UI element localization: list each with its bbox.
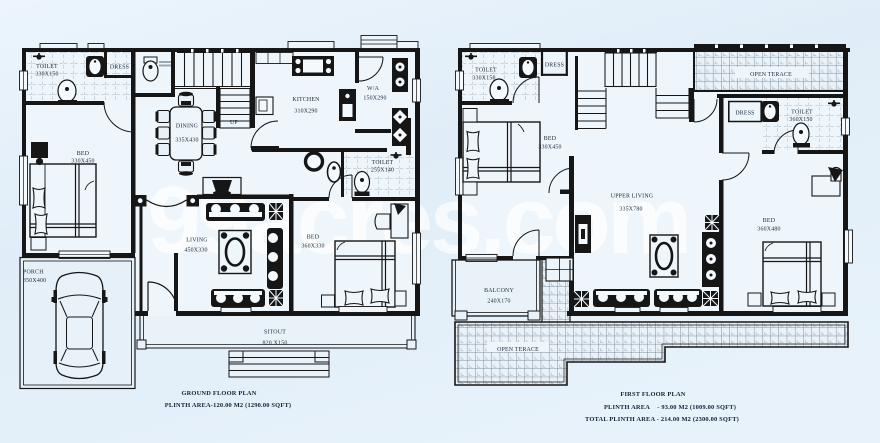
svg-text:UPPER LIVING: UPPER LIVING (611, 194, 654, 200)
svg-text:BED: BED (77, 151, 90, 157)
svg-text:OPEN TERACE: OPEN TERACE (750, 72, 792, 78)
svg-text:820 X150: 820 X150 (263, 341, 288, 347)
svg-text:360X330: 360X330 (301, 244, 324, 250)
svg-text:BALCONY: BALCONY (484, 288, 514, 294)
svg-text:FIRST FLOOR PLAN: FIRST FLOOR PLAN (620, 391, 685, 398)
svg-text:OPEN TERACE: OPEN TERACE (497, 347, 539, 353)
svg-text:TOILET: TOILET (791, 110, 813, 116)
svg-text:350X400: 350X400 (23, 278, 46, 284)
svg-text:330X150: 330X150 (472, 76, 495, 82)
svg-text:360X150: 360X150 (789, 117, 812, 123)
svg-text:TOILET: TOILET (475, 68, 497, 74)
svg-text:GROUND FLOOR PLAN: GROUND FLOOR PLAN (181, 390, 256, 397)
svg-text:335X780: 335X780 (619, 207, 642, 213)
svg-text:BED: BED (763, 218, 776, 224)
svg-text:360X480: 360X480 (757, 227, 780, 233)
svg-text:240X170: 240X170 (487, 299, 510, 305)
svg-text:TOILET: TOILET (36, 64, 58, 70)
svg-text:310X290: 310X290 (294, 109, 317, 115)
svg-text:TOTAL PLINTH AREA - 214.00 M2: TOTAL PLINTH AREA - 214.00 M2 (2300.00 S… (585, 416, 739, 423)
svg-text:UP: UP (230, 120, 238, 126)
svg-text:330X150: 330X150 (35, 72, 58, 78)
svg-text:255X140: 255X140 (371, 168, 394, 174)
svg-text:PORCH: PORCH (23, 270, 44, 276)
svg-text:PLINTH AREA-120.00 M2 (1290.00: PLINTH AREA-120.00 M2 (1290.00 SQFT) (165, 402, 292, 409)
svg-text:BED: BED (307, 235, 320, 241)
svg-text:PLINTH AREA - 93.00 M2 (100: PLINTH AREA - 93.00 M2 (1009.00 SQFT) (604, 404, 736, 411)
svg-text:150X290: 150X290 (363, 96, 386, 102)
svg-text:DRESS: DRESS (545, 63, 564, 69)
svg-text:330X450: 330X450 (71, 159, 94, 165)
svg-text:335X430: 335X430 (175, 138, 198, 144)
svg-text:SITOUT: SITOUT (264, 330, 286, 336)
svg-text:DRESS: DRESS (110, 65, 129, 71)
svg-text:330X450: 330X450 (538, 145, 561, 151)
svg-text:LIVING: LIVING (186, 238, 208, 244)
svg-text:DRESS: DRESS (735, 111, 754, 117)
svg-text:KITCHEN: KITCHEN (292, 97, 320, 103)
svg-text:BED: BED (544, 136, 557, 142)
svg-text:TOILET: TOILET (372, 160, 394, 166)
svg-text:450X330: 450X330 (184, 248, 207, 254)
svg-text:W/A: W/A (367, 86, 380, 92)
svg-text:DINING: DINING (176, 124, 199, 130)
